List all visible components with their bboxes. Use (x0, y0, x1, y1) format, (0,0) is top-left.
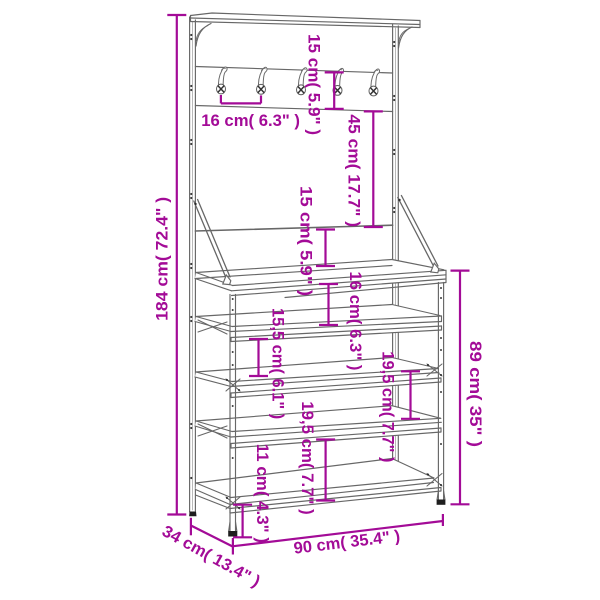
svg-text:19,5 cm( 7.7" ): 19,5 cm( 7.7" ) (379, 351, 397, 462)
svg-text:89 cm( 35" ): 89 cm( 35" ) (466, 341, 484, 447)
svg-text:45 cm( 17.7" ): 45 cm( 17.7" ) (345, 114, 363, 227)
svg-text:19,5 cm( 7.7" ): 19,5 cm( 7.7" ) (298, 401, 316, 514)
svg-text:16 cm( 6.3" ): 16 cm( 6.3" ) (201, 112, 300, 130)
svg-text:184 cm( 72.4" ): 184 cm( 72.4" ) (154, 197, 172, 321)
svg-text:16 cm( 6.3" ): 16 cm( 6.3" ) (346, 272, 364, 371)
svg-text:15,5 cm( 6.1" ): 15,5 cm( 6.1" ) (269, 308, 287, 419)
svg-text:15 cm( 5.9" ): 15 cm( 5.9" ) (297, 186, 315, 296)
svg-text:15 cm( 5.9" ): 15 cm( 5.9" ) (305, 34, 323, 135)
svg-text:34 cm( 13.4" ): 34 cm( 13.4" ) (159, 522, 263, 591)
svg-text:11 cm( 4.3" ): 11 cm( 4.3" ) (253, 444, 271, 543)
